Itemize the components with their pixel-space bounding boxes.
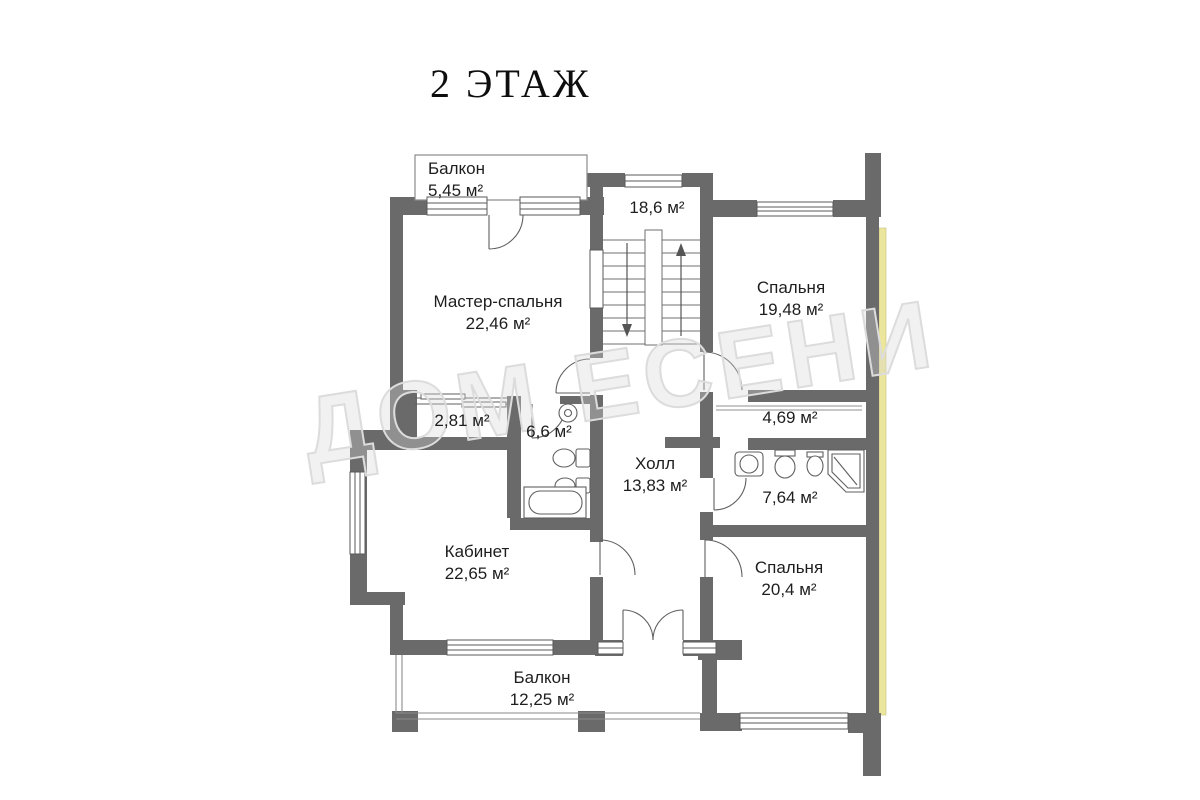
room-name: Спальня [755, 557, 823, 579]
room-area: 13,83 м² [623, 475, 688, 497]
balcony-columns [392, 711, 605, 732]
room-label-closet: 2,81 м² [434, 410, 489, 432]
room-label-stairwell: 18,6 м² [629, 197, 684, 219]
floor-plan-page: ДОМ ЕСЕНИ 2 ЭТАЖ Балкон 5,45 м² 18,6 м² … [0, 0, 1200, 800]
room-label-bedroom-upper: Спальня 19,48 м² [757, 277, 825, 321]
room-name: Балкон [428, 158, 485, 180]
room-label-hall: Холл 13,83 м² [623, 453, 688, 497]
room-area: 5,45 м² [428, 180, 485, 202]
room-label-balcony-top: Балкон 5,45 м² [428, 158, 485, 202]
room-name: Спальня [757, 277, 825, 299]
room-label-bathroom-small: 6,6 м² [526, 421, 572, 443]
room-label-wardrobe: 4,69 м² [762, 407, 817, 429]
room-area: 18,6 м² [629, 197, 684, 219]
room-name: Балкон [510, 667, 575, 689]
room-area: 7,64 м² [762, 487, 817, 509]
room-name: Холл [623, 453, 688, 475]
floor-plan-drawing [0, 0, 1200, 800]
room-area: 2,81 м² [434, 410, 489, 432]
room-area: 19,48 м² [757, 299, 825, 321]
room-label-office: Кабинет 22,65 м² [445, 541, 510, 585]
room-area: 4,69 м² [762, 407, 817, 429]
room-label-bathroom-large: 7,64 м² [762, 487, 817, 509]
toilet-icon [576, 449, 590, 467]
room-name: Кабинет [445, 541, 510, 563]
room-label-master-bedroom: Мастер-спальня 22,46 м² [433, 291, 562, 335]
room-area: 20,4 м² [755, 579, 823, 601]
sliding-doors [415, 394, 507, 407]
room-label-bedroom-lower: Спальня 20,4 м² [755, 557, 823, 601]
toilet-icon [775, 450, 795, 456]
staircase [603, 230, 700, 345]
wall-niche [590, 250, 603, 308]
room-label-balcony-bottom: Балкон 12,25 м² [510, 667, 575, 711]
room-name: Мастер-спальня [433, 291, 562, 313]
room-area: 22,65 м² [445, 563, 510, 585]
room-area: 12,25 м² [510, 689, 575, 711]
bathroom-large-fixtures [735, 450, 864, 492]
walls [350, 153, 881, 776]
room-area: 22,46 м² [433, 313, 562, 335]
insulation-strip [879, 228, 886, 715]
page-title: 2 ЭТАЖ [430, 60, 592, 107]
room-area: 6,6 м² [526, 421, 572, 443]
